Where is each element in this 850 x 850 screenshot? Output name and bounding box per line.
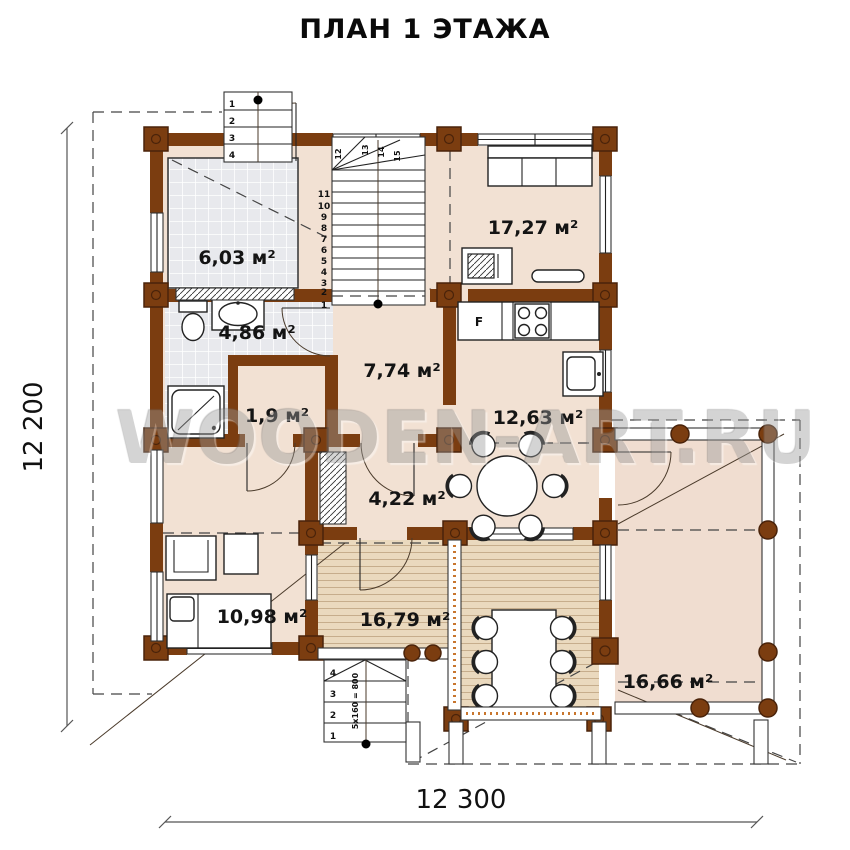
room-label-hall: 7,74 м² (363, 360, 440, 382)
column (592, 722, 606, 764)
floor-plan-drawing: F (0, 0, 850, 850)
svg-text:10: 10 (318, 202, 331, 212)
long-table (473, 610, 575, 714)
svg-text:1: 1 (321, 301, 327, 311)
armchair (166, 536, 216, 580)
sofa (488, 146, 592, 186)
kitchen-sink (563, 352, 603, 396)
shower-cabin (168, 386, 224, 438)
svg-text:9: 9 (321, 213, 327, 223)
bedroom-table (224, 534, 258, 574)
svg-text:14: 14 (377, 146, 386, 158)
svg-text:1: 1 (229, 100, 235, 110)
svg-text:3: 3 (229, 134, 235, 144)
room-label-terrace: 16,79 м² (360, 609, 451, 631)
svg-text:3: 3 (330, 690, 336, 700)
svg-text:7: 7 (321, 235, 327, 245)
exterior-stairs: 4 3 2 1 5x160 = 800 (324, 660, 406, 749)
window (478, 134, 592, 145)
svg-text:6: 6 (321, 246, 327, 256)
svg-text:13: 13 (361, 144, 370, 155)
column (449, 722, 463, 764)
dimension-bottom-value: 12 300 (416, 785, 507, 815)
console-table (532, 270, 584, 282)
window (151, 213, 163, 272)
svg-text:4: 4 (330, 669, 336, 679)
svg-text:1: 1 (330, 732, 336, 742)
room-label-bedroom: 10,98 м² (217, 606, 308, 628)
window (151, 450, 163, 523)
room-label-bathroom: 4,86 м² (218, 322, 295, 344)
fireplace (462, 248, 512, 284)
room-label-sauna: 6,03 м² (198, 247, 275, 269)
stove (515, 304, 549, 338)
window (306, 555, 317, 600)
dimension-left-value: 12 200 (19, 382, 49, 473)
svg-text:11: 11 (318, 190, 331, 200)
svg-text:2: 2 (330, 711, 336, 721)
room-label-kitchen: 12,63 м² (493, 407, 584, 429)
svg-text:2: 2 (321, 288, 327, 298)
svg-text:5: 5 (321, 257, 327, 267)
svg-text:2: 2 (229, 117, 235, 127)
svg-text:12: 12 (334, 148, 343, 159)
svg-text:8: 8 (321, 224, 327, 234)
floor-plan-canvas: F (0, 0, 850, 850)
svg-text:15: 15 (393, 150, 402, 162)
sauna-bench (176, 288, 294, 300)
room-label-inner-hall: 4,22 м² (368, 488, 445, 510)
toilet (179, 301, 207, 341)
room-label-living: 17,27 м² (488, 217, 579, 239)
window (151, 572, 163, 641)
column (754, 720, 768, 764)
room-label-closet: 1,9 м² (245, 405, 309, 427)
kitchen-counter: F (458, 302, 599, 340)
dimension-left: 12 200 (19, 122, 73, 732)
column (406, 722, 420, 762)
veranda-floor (615, 440, 774, 702)
duct-shaft (320, 452, 346, 524)
room-label-veranda: 16,66 м² (623, 671, 714, 693)
svg-text:4: 4 (229, 151, 235, 161)
stair-note: 5x160 = 800 (351, 672, 360, 729)
page-title: ПЛАН 1 ЭТАЖА (0, 14, 850, 45)
window (600, 176, 611, 253)
fridge-label: F (475, 315, 483, 329)
interior-staircase: 1 2 3 4 5 6 7 8 9 10 11 12 13 14 15 (318, 137, 425, 311)
window (600, 545, 611, 600)
svg-text:4: 4 (321, 268, 327, 278)
dimension-bottom: 12 300 (159, 785, 763, 828)
entry-stairs: 1 2 3 4 (224, 92, 292, 162)
svg-text:3: 3 (321, 279, 327, 289)
